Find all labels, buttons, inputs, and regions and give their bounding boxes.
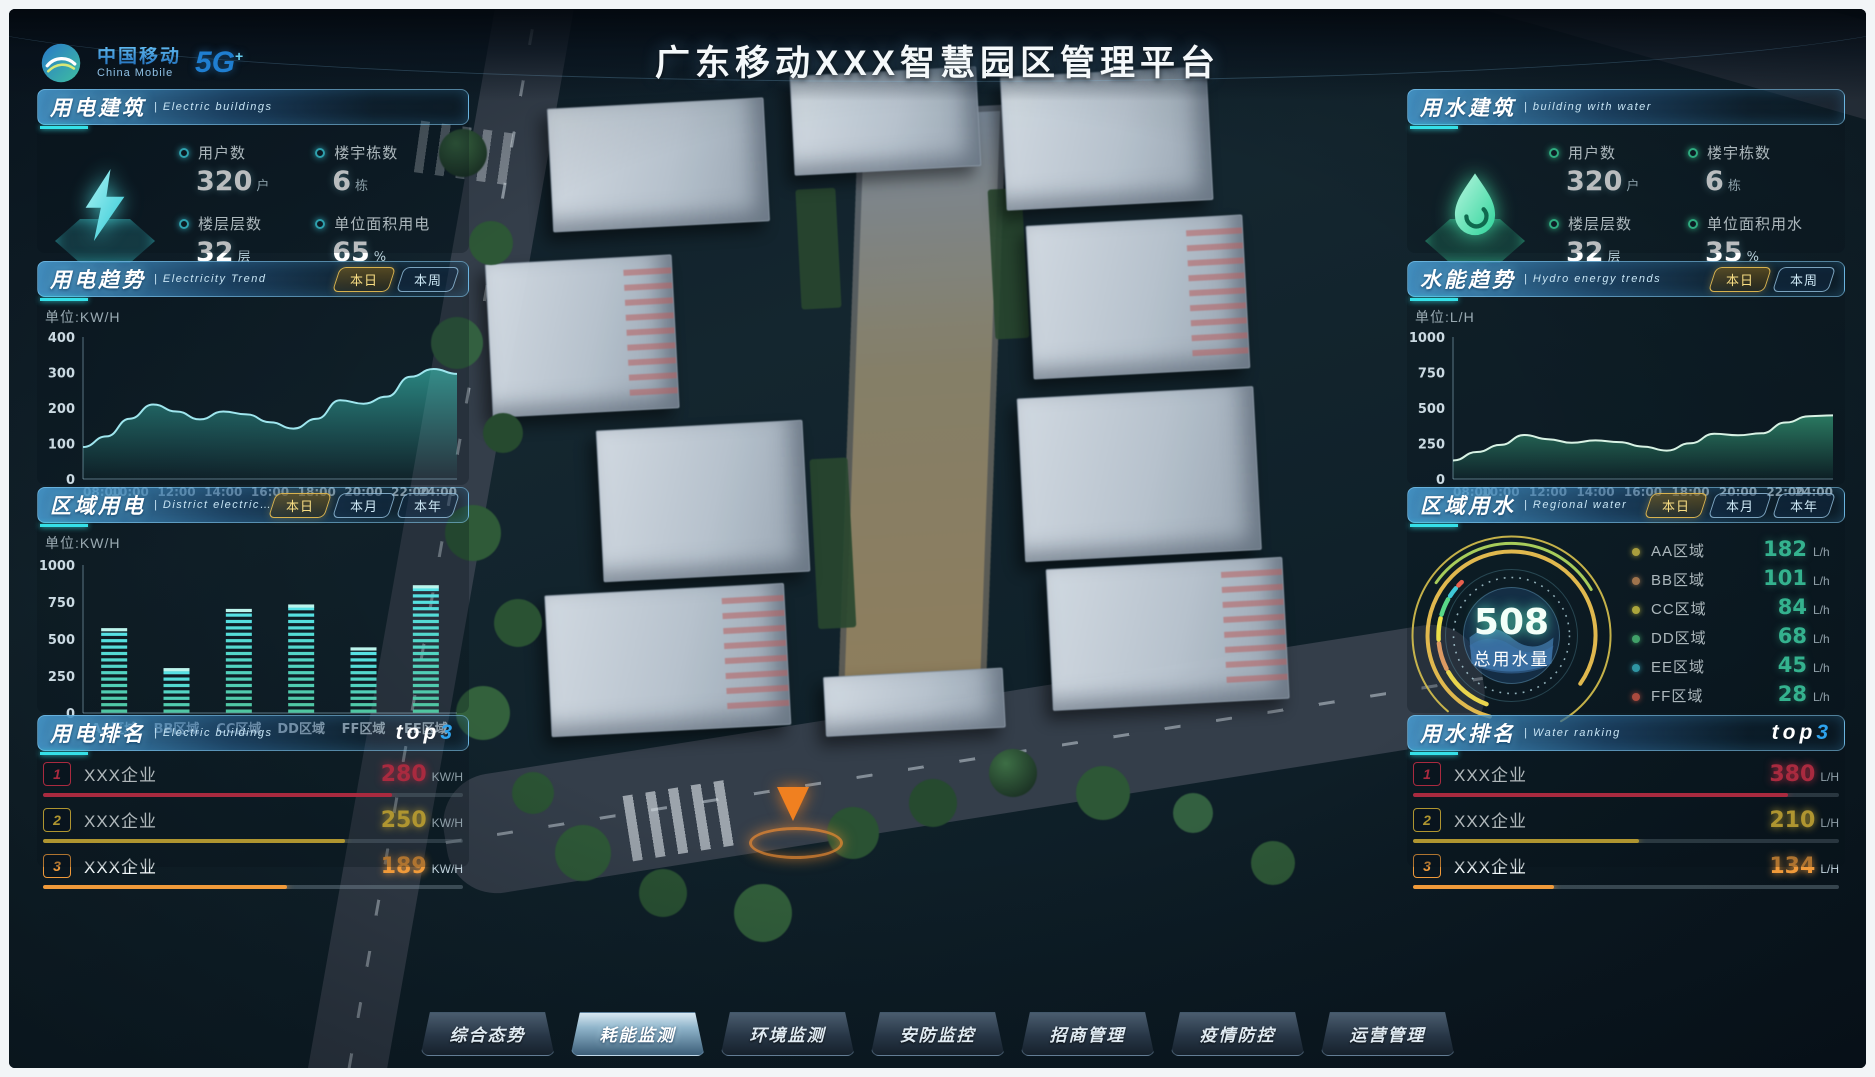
panel-title: 用电趋势 — [50, 264, 146, 294]
building-block — [547, 97, 770, 232]
page-title: 广东移动XXX智慧园区管理平台 — [9, 35, 1866, 86]
brand: 中国移动 China Mobile 5G+ — [39, 41, 243, 85]
bottom-nav: 综合态势 耗能监测 环境监测 安防监控 招商管理 疫情防控 运营管理 — [9, 1012, 1866, 1056]
panel-hydro-trend: 水能趋势 | Hydro energy trends 本日 本周 单位:L/H … — [1407, 261, 1845, 485]
hydro-trend-chart: 0250500750100008:0010:0012:0014:0016:001… — [1407, 329, 1845, 501]
brand-name-en: China Mobile — [97, 67, 181, 79]
panel-subtitle: | Hydro energy trends — [1524, 273, 1661, 285]
dashboard-frame: 广东移动XXX智慧园区管理平台 中国移动 China Mobile 5G+ 用电… — [0, 0, 1875, 1077]
panel-subtitle: | District electricity — [154, 499, 272, 511]
district-tabs: 本日 本月 本年 — [272, 493, 456, 518]
panel-title: 用电建筑 — [50, 92, 146, 122]
tab-this-week[interactable]: 本周 — [396, 267, 460, 292]
water-drop-icon — [1411, 141, 1539, 269]
svg-text:100: 100 — [48, 438, 75, 453]
building-block — [485, 254, 680, 418]
svg-text:250: 250 — [1418, 438, 1445, 453]
brand-name-zh: 中国移动 — [97, 47, 181, 68]
panel-header: 水能趋势 | Hydro energy trends 本日 本周 — [1407, 261, 1845, 297]
lawn — [795, 188, 841, 310]
tab-this-month[interactable]: 本月 — [332, 493, 396, 518]
panel-title: 用水建筑 — [1420, 92, 1516, 122]
nav-tab-security-monitoring[interactable]: 安防监控 — [871, 1012, 1005, 1056]
panel-header: 区域用水 | Regional water 本日 本月 本年 — [1407, 487, 1845, 523]
panel-water-buildings: 用水建筑 | building with water 用户数 320户 — [1407, 89, 1845, 253]
tab-this-month[interactable]: 本月 — [1708, 493, 1772, 518]
panel-header: 用水建筑 | building with water — [1407, 89, 1845, 125]
panel-water-ranking: 用水排名 | Water ranking top3 1 XXX企业 380 L/… — [1407, 715, 1845, 867]
svg-text:500: 500 — [48, 633, 75, 648]
panel-title: 区域用电 — [50, 490, 146, 520]
lightning-icon — [41, 141, 169, 269]
panel-regional-water: 区域用水 | Regional water 本日 本月 本年 508 总用水量 … — [1407, 487, 1845, 713]
svg-text:400: 400 — [48, 331, 75, 346]
trend-tabs: 本日 本周 — [336, 267, 456, 292]
svg-text:1000: 1000 — [1409, 331, 1445, 346]
building-block — [1046, 557, 1290, 711]
svg-text:0: 0 — [1436, 473, 1445, 488]
panel-subtitle: | Regional water — [1524, 499, 1627, 511]
building-block — [823, 668, 1006, 737]
panel-electricity-ranking: 用电排名 | Electric buildings top3 1 XXX企业 2… — [37, 715, 469, 867]
building-block — [544, 583, 791, 737]
rank-bar-track — [43, 885, 463, 889]
lawn — [988, 188, 1030, 340]
svg-text:250: 250 — [48, 670, 75, 685]
5g-logo-icon: 5G+ — [195, 48, 243, 78]
panel-header: 用电趋势 | Electricity Trend 本日 本周 — [37, 261, 469, 297]
tab-today[interactable]: 本日 — [1708, 267, 1772, 292]
location-marker-icon — [777, 787, 809, 821]
nav-tab-operations-management[interactable]: 运营管理 — [1321, 1012, 1455, 1056]
svg-text:300: 300 — [48, 367, 75, 382]
tab-today[interactable]: 本日 — [332, 267, 396, 292]
panel-header: 用电建筑 | Electric buildings — [37, 89, 469, 125]
district-electricity-chart: 02505007501000AA区域BB区域CC区域DD区域FF区域EE区域 — [37, 555, 469, 739]
electricity-trend-chart: 010020030040008:0010:0012:0014:0016:0018… — [37, 329, 469, 501]
gauge-label: 总用水量 — [1474, 645, 1550, 670]
svg-text:0: 0 — [66, 473, 75, 488]
panel-subtitle: | building with water — [1524, 101, 1652, 113]
panel-electricity-trend: 用电趋势 | Electricity Trend 本日 本周 单位:KW/H 0… — [37, 261, 469, 485]
building-block — [1000, 66, 1214, 211]
svg-text:500: 500 — [1418, 402, 1445, 417]
panel-title: 用水排名 — [1420, 718, 1516, 748]
building-block — [1017, 386, 1262, 562]
campus-buildings — [460, 54, 1324, 767]
tab-this-year[interactable]: 本年 — [1772, 493, 1836, 518]
panel-subtitle: | Electricity Trend — [154, 273, 266, 285]
china-mobile-logo-icon — [39, 41, 83, 85]
top3-badge: top3 — [396, 721, 456, 745]
panel-title: 区域用水 — [1420, 490, 1516, 520]
panel-header: 用电排名 | Electric buildings top3 — [37, 715, 469, 751]
panel-title: 水能趋势 — [1420, 264, 1516, 294]
nav-tab-investment-management[interactable]: 招商管理 — [1021, 1012, 1155, 1056]
nav-tab-energy-monitoring[interactable]: 耗能监测 — [571, 1012, 705, 1056]
trend-tabs: 本日 本周 — [1712, 267, 1832, 292]
tab-today[interactable]: 本日 — [1644, 493, 1708, 518]
panel-header: 区域用电 | District electricity 本日 本月 本年 — [37, 487, 469, 523]
location-marker-ring — [749, 827, 843, 859]
panel-title: 用电排名 — [50, 718, 146, 748]
panel-subtitle: | Water ranking — [1524, 727, 1621, 739]
tab-this-week[interactable]: 本周 — [1772, 267, 1836, 292]
total-water-gauge: 508 总用水量 — [1409, 533, 1614, 738]
central-walkway — [838, 105, 1006, 690]
gauge-center: 508 总用水量 — [1474, 602, 1550, 670]
panel-subtitle: | Electric buildings — [154, 101, 272, 113]
nav-tab-comprehensive-situation[interactable]: 综合态势 — [421, 1012, 555, 1056]
svg-text:750: 750 — [48, 596, 75, 611]
panel-district-electricity: 区域用电 | District electricity 本日 本月 本年 单位:… — [37, 487, 469, 713]
svg-text:750: 750 — [1418, 367, 1445, 382]
rank-bar-fill — [1413, 885, 1554, 889]
top3-badge: top3 — [1772, 721, 1832, 745]
regional-tabs: 本日 本月 本年 — [1648, 493, 1832, 518]
tab-this-year[interactable]: 本年 — [396, 493, 460, 518]
svg-text:1000: 1000 — [39, 559, 75, 574]
svg-text:200: 200 — [48, 402, 75, 417]
nav-tab-epidemic-prevention[interactable]: 疫情防控 — [1171, 1012, 1305, 1056]
tab-today[interactable]: 本日 — [268, 493, 332, 518]
dashboard-screen: 广东移动XXX智慧园区管理平台 中国移动 China Mobile 5G+ 用电… — [9, 9, 1866, 1068]
tree-cluster — [989, 749, 1037, 797]
panel-electric-buildings: 用电建筑 | Electric buildings 用户数 320户 楼宇栋数 — [37, 89, 469, 253]
rank-bar-fill — [43, 885, 287, 889]
nav-tab-environment-monitoring[interactable]: 环境监测 — [721, 1012, 855, 1056]
panel-subtitle: | Electric buildings — [154, 727, 272, 739]
panel-header: 用水排名 | Water ranking top3 — [1407, 715, 1845, 751]
building-block — [596, 420, 811, 583]
building-block — [1026, 214, 1251, 379]
gauge-value: 508 — [1474, 602, 1550, 643]
rank-bar-track — [1413, 885, 1839, 889]
